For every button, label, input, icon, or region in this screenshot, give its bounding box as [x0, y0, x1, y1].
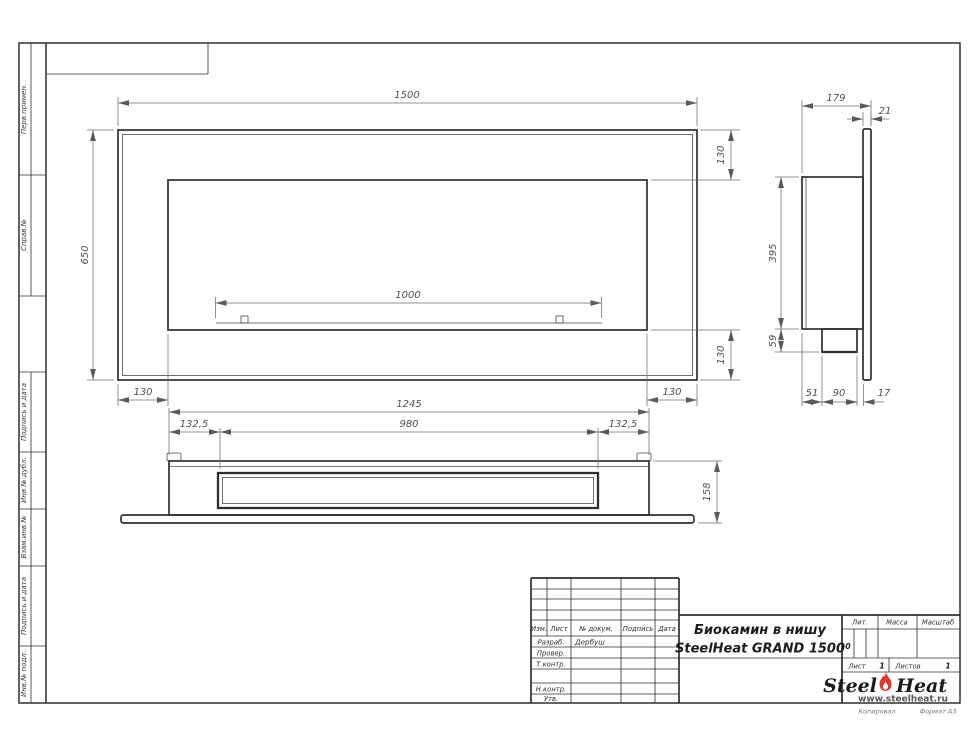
tb-col-izm: Изм.	[531, 625, 547, 633]
dim-side-body-height: 395	[768, 243, 779, 262]
front-panel-edge	[121, 515, 694, 523]
footer-notes: Копировал Формат А3	[858, 708, 956, 716]
tb-scale-label: Масштаб	[922, 619, 954, 627]
dim-side-tray-offset: 51	[806, 388, 819, 399]
tb-sheets-label: Листов	[894, 663, 920, 671]
dim-side-gap: 17	[878, 388, 891, 399]
sheet-frame	[19, 43, 960, 703]
burner-clip-left	[241, 316, 248, 323]
dim-side-panel-thickness: 21	[879, 106, 892, 117]
tb-lit-value: 0	[845, 642, 850, 651]
plan-view	[121, 453, 694, 523]
margin-label-inv-podl: Инв.№ подл.	[20, 651, 28, 697]
margin-label-inv-dubl: Инв.№ дубл.	[20, 457, 28, 503]
tb-row-razrab: Разраб.	[538, 639, 565, 647]
dim-front-frame-top: 130	[716, 145, 727, 164]
dim-plan-side-right: 132,5	[609, 419, 638, 430]
dim-plan-body-width: 1245	[396, 399, 421, 410]
logo-url: www.steelheat.ru	[858, 695, 948, 705]
tb-sheets-total: 1	[945, 662, 950, 671]
dim-front-overall-height: 650	[80, 245, 91, 264]
dim-front-overall-width: 1500	[394, 90, 419, 101]
margin-label-podpis-data-2: Подпись и дата	[20, 577, 28, 635]
side-front-panel	[863, 129, 871, 380]
dim-side-tray-width: 90	[833, 388, 846, 399]
side-view-dimensions: 179 21 395 59 51 90 17	[768, 93, 891, 406]
burner-insert	[218, 473, 598, 508]
doc-title-line1: Биокамин в нишу	[694, 623, 826, 638]
side-view	[802, 129, 871, 380]
dim-side-total-depth: 179	[826, 93, 845, 104]
dim-plan-depth: 158	[702, 482, 713, 501]
dim-side-tray-height: 59	[768, 335, 779, 348]
tb-lit-label: Лит.	[851, 619, 868, 627]
side-body	[802, 177, 863, 329]
doc-title-line2: SteelHeat GRAND 1500	[675, 642, 845, 657]
drawing-canvas: Перв.примен. Справ.№ Подпись и дата Инв.…	[0, 0, 970, 749]
margin-column: Перв.примен. Справ.№ Подпись и дата Инв.…	[19, 43, 46, 703]
margin-label-podpis-data-1: Подпись и дата	[20, 383, 28, 441]
margin-label-sprav: Справ.№	[20, 219, 28, 251]
tb-row-razrab-name: Дербуш	[574, 638, 605, 647]
tb-col-data: Дата	[657, 625, 676, 633]
dim-front-burner-length: 1000	[395, 290, 420, 301]
tb-row-tkontr: Т.контр.	[536, 661, 565, 669]
tb-sheet-label: Лист	[847, 663, 866, 671]
margin-label-perv-primen: Перв.примен.	[20, 84, 28, 134]
tb-col-podpis: Подпись	[623, 625, 654, 633]
dim-plan-insert-width: 980	[399, 419, 418, 430]
drawing-sheet: Перв.примен. Справ.№ Подпись и дата Инв.…	[0, 0, 970, 749]
tb-col-ndokum: № докум.	[578, 625, 613, 633]
dim-front-frame-right: 130	[662, 387, 681, 398]
margin-label-vzam-inv: Взам.инв.№	[20, 515, 28, 558]
dim-front-frame-left: 130	[133, 387, 152, 398]
tb-row-prover: Провер.	[537, 650, 565, 658]
tb-mass-label: Масса	[886, 619, 908, 627]
dim-front-frame-bottom: 130	[716, 345, 727, 364]
tb-row-utv: Утв.	[544, 695, 558, 703]
dim-plan-side-left: 132,5	[180, 419, 209, 430]
tb-row-nkontr: Н.контр.	[536, 686, 566, 694]
tb-col-list: Лист	[549, 625, 568, 633]
front-view-dimensions: 1500 650 130 1000 130 130 130	[80, 90, 740, 406]
footer-format: Формат А3	[919, 708, 956, 716]
flame-icon	[880, 672, 892, 692]
burner-clip-right	[556, 316, 563, 323]
front-view	[118, 130, 697, 380]
footer-copied-by: Копировал	[858, 708, 895, 716]
side-burner-tray	[822, 329, 857, 352]
tb-sheet-number: 1	[879, 662, 884, 671]
